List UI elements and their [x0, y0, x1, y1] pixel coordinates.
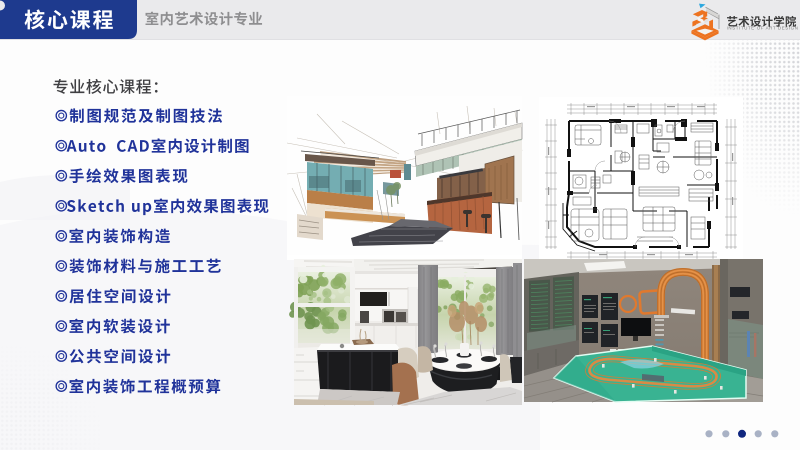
svg-text:INSTITUTE OF ART DESIGN: INSTITUTE OF ART DESIGN: [727, 26, 799, 31]
